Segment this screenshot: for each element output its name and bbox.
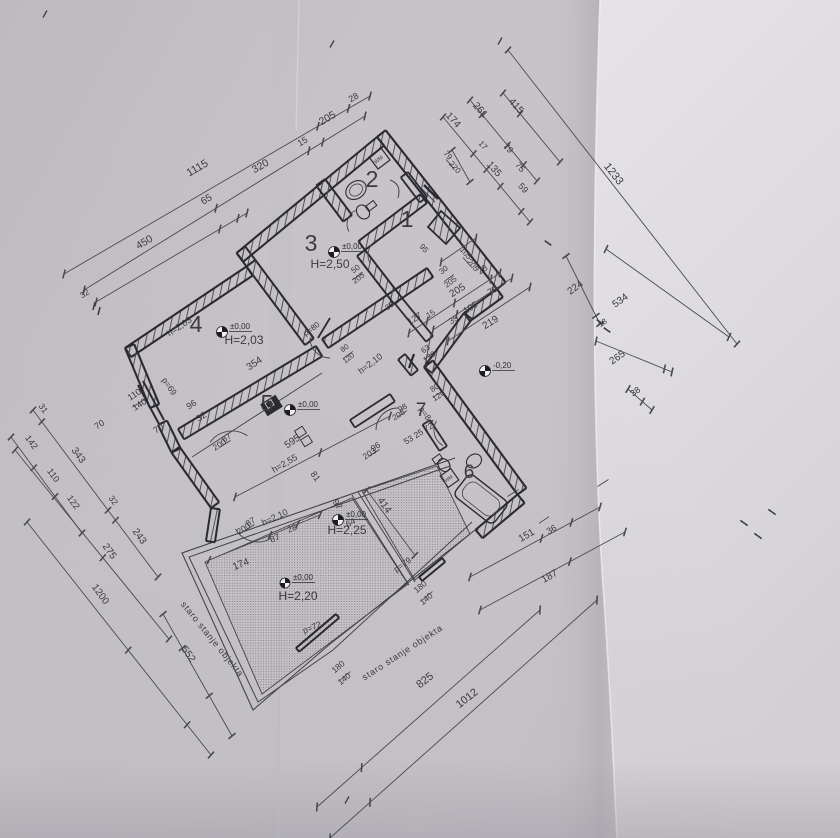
svg-text:2: 2 <box>366 166 379 192</box>
svg-text:6: 6 <box>464 462 475 483</box>
svg-text:±0,00: ±0,00 <box>298 400 319 409</box>
svg-text:H=2,50: H=2,50 <box>310 257 349 271</box>
svg-text:1: 1 <box>401 206 414 232</box>
svg-text:H=2,03: H=2,03 <box>224 333 263 347</box>
svg-text:-0,20: -0,20 <box>493 361 512 370</box>
svg-text:3: 3 <box>305 230 318 256</box>
svg-text:±0,00: ±0,00 <box>342 242 363 251</box>
svg-text:±0,00: ±0,00 <box>230 322 251 331</box>
svg-text:H=2,20: H=2,20 <box>278 589 317 603</box>
svg-text:±0,00: ±0,00 <box>293 573 314 582</box>
svg-text:5: 5 <box>261 390 274 416</box>
